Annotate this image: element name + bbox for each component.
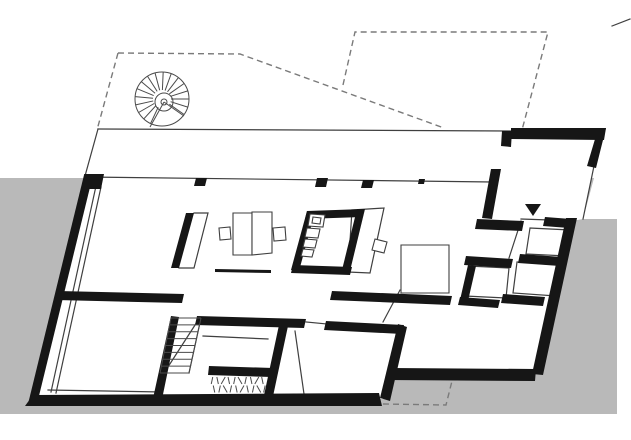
- wall-segment: [418, 179, 425, 184]
- wall-segment: [84, 174, 104, 189]
- furniture-item: [372, 239, 387, 253]
- furniture-item: [252, 212, 272, 255]
- spiral-tread: [155, 73, 160, 90]
- spiral-wedge-edge: [164, 102, 184, 116]
- wall-segment: [511, 128, 606, 140]
- spiral-tread: [136, 101, 154, 105]
- furniture-item: [303, 239, 317, 248]
- spiral-wedge-edge: [150, 102, 164, 127]
- spiral-tread: [139, 104, 155, 113]
- furniture-item: [305, 228, 320, 238]
- wall-segment: [501, 131, 512, 147]
- furniture-item: [219, 227, 231, 240]
- spiral-tread: [135, 97, 153, 99]
- wall-segment: [25, 393, 382, 406]
- wall-segment: [315, 178, 328, 187]
- dashed-outline-segment: [97, 53, 118, 130]
- dashed-outline-segment: [118, 53, 444, 128]
- dashed-outline-segment: [343, 32, 548, 130]
- furniture-item: [401, 245, 449, 293]
- wall-segment: [386, 368, 536, 381]
- spiral-tread: [147, 76, 157, 91]
- spiral-staircase: [135, 72, 189, 127]
- wall-segment: [194, 178, 207, 186]
- thin-line: [612, 19, 630, 26]
- floor-plan-page: [0, 0, 631, 440]
- floor-plan-svg: [0, 0, 631, 440]
- furniture-item: [233, 213, 252, 255]
- wall-segment: [475, 219, 524, 231]
- furniture-item: [273, 227, 286, 241]
- furniture-item: [301, 249, 314, 257]
- spiral-tread: [162, 72, 163, 90]
- wall-segment: [361, 180, 374, 188]
- furniture-item: [312, 217, 321, 224]
